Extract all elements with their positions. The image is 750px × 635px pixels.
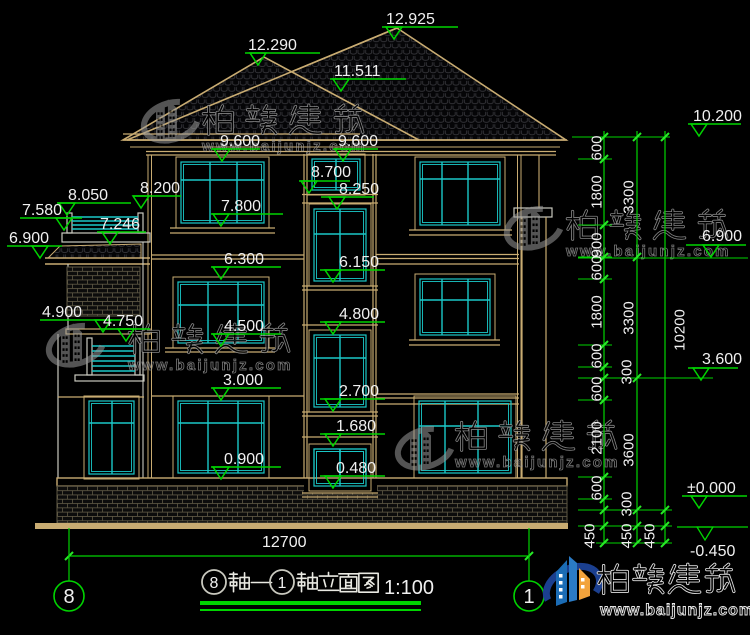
svg-text:7.246: 7.246 bbox=[100, 216, 140, 233]
svg-text:6.150: 6.150 bbox=[339, 254, 379, 271]
svg-text:1800: 1800 bbox=[589, 175, 606, 208]
svg-text:12.925: 12.925 bbox=[386, 11, 435, 28]
svg-text:300: 300 bbox=[619, 359, 636, 384]
svg-text:0.900: 0.900 bbox=[224, 451, 264, 468]
svg-text:12700: 12700 bbox=[262, 534, 307, 551]
svg-text:4.750: 4.750 bbox=[103, 313, 143, 330]
svg-text:1: 1 bbox=[523, 586, 534, 608]
svg-text:600: 600 bbox=[589, 475, 606, 500]
svg-text:450: 450 bbox=[619, 523, 636, 548]
svg-text:4.800: 4.800 bbox=[339, 306, 379, 323]
svg-text:1800: 1800 bbox=[589, 295, 606, 328]
svg-text:4.900: 4.900 bbox=[42, 304, 82, 321]
svg-text:8: 8 bbox=[210, 575, 219, 592]
svg-text:7.580: 7.580 bbox=[22, 202, 62, 219]
svg-text:3300: 3300 bbox=[621, 301, 638, 334]
svg-text:8.050: 8.050 bbox=[68, 187, 108, 204]
svg-text:11.511: 11.511 bbox=[334, 63, 381, 80]
svg-text:900: 900 bbox=[589, 232, 606, 257]
svg-text:3.000: 3.000 bbox=[223, 372, 263, 389]
svg-text:2.700: 2.700 bbox=[339, 383, 379, 400]
svg-text:8: 8 bbox=[63, 586, 74, 608]
svg-text:0.480: 0.480 bbox=[336, 460, 376, 477]
svg-text:3300: 3300 bbox=[621, 180, 638, 213]
svg-text:8.250: 8.250 bbox=[339, 181, 379, 198]
svg-text:1.680: 1.680 bbox=[336, 418, 376, 435]
svg-text:www.baijunjz.com: www.baijunjz.com bbox=[454, 454, 620, 471]
svg-text:10200: 10200 bbox=[672, 309, 689, 351]
svg-text:600: 600 bbox=[589, 376, 606, 401]
svg-text:1:100: 1:100 bbox=[384, 577, 434, 599]
svg-text:450: 450 bbox=[642, 523, 659, 548]
svg-text:600: 600 bbox=[589, 255, 606, 280]
svg-text:10.200: 10.200 bbox=[693, 108, 742, 125]
svg-text:450: 450 bbox=[582, 523, 599, 548]
svg-text:-0.450: -0.450 bbox=[690, 543, 735, 560]
svg-text:7.800: 7.800 bbox=[221, 198, 261, 215]
svg-text:6.900: 6.900 bbox=[702, 228, 742, 245]
svg-text:3600: 3600 bbox=[621, 433, 638, 466]
svg-text:9.600: 9.600 bbox=[220, 133, 260, 150]
svg-text:300: 300 bbox=[619, 491, 636, 516]
svg-text:600: 600 bbox=[589, 343, 606, 368]
svg-text:www.baijunjz.com: www.baijunjz.com bbox=[127, 357, 293, 374]
svg-text:3.600: 3.600 bbox=[702, 351, 742, 368]
svg-text:2100: 2100 bbox=[589, 421, 606, 454]
svg-text:9.600: 9.600 bbox=[338, 133, 378, 150]
svg-text:www.baijunjz.com: www.baijunjz.com bbox=[599, 602, 750, 619]
svg-text:6.900: 6.900 bbox=[9, 230, 49, 247]
svg-text:6.300: 6.300 bbox=[224, 251, 264, 268]
svg-text:8.700: 8.700 bbox=[311, 164, 351, 181]
svg-text:12.290: 12.290 bbox=[248, 37, 297, 54]
svg-text:4.500: 4.500 bbox=[224, 318, 264, 335]
svg-text:600: 600 bbox=[589, 135, 606, 160]
svg-text:1: 1 bbox=[278, 575, 287, 592]
svg-text:±0.000: ±0.000 bbox=[687, 480, 736, 497]
svg-text:8.200: 8.200 bbox=[140, 180, 180, 197]
